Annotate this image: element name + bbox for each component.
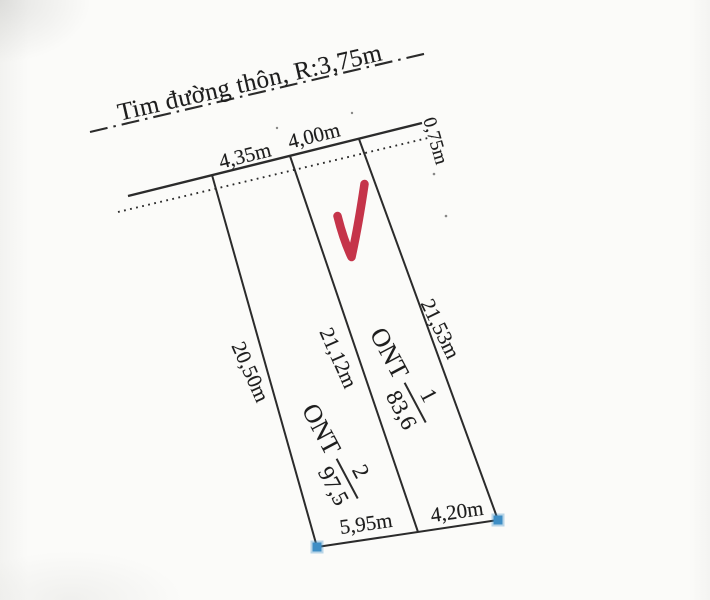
scan-speck [351, 112, 353, 114]
corner-point-marker [313, 543, 322, 552]
parcel-2-zone: ONT [297, 400, 345, 459]
scan-speck [433, 173, 436, 176]
plan-linework [0, 0, 710, 600]
road-edge-line [128, 123, 422, 196]
scan-speck [445, 215, 448, 218]
red-checkmark-icon [338, 184, 365, 257]
survey-drawing: Tim đường thôn, R:3,75m 4,35m 4,00m 0,75… [0, 0, 710, 600]
setback-dotted-line [118, 137, 432, 212]
corner-point-marker [494, 516, 503, 525]
parcel-1-zone: ONT [365, 324, 413, 383]
boundary-line-left [212, 175, 317, 547]
scan-speck [276, 127, 278, 129]
